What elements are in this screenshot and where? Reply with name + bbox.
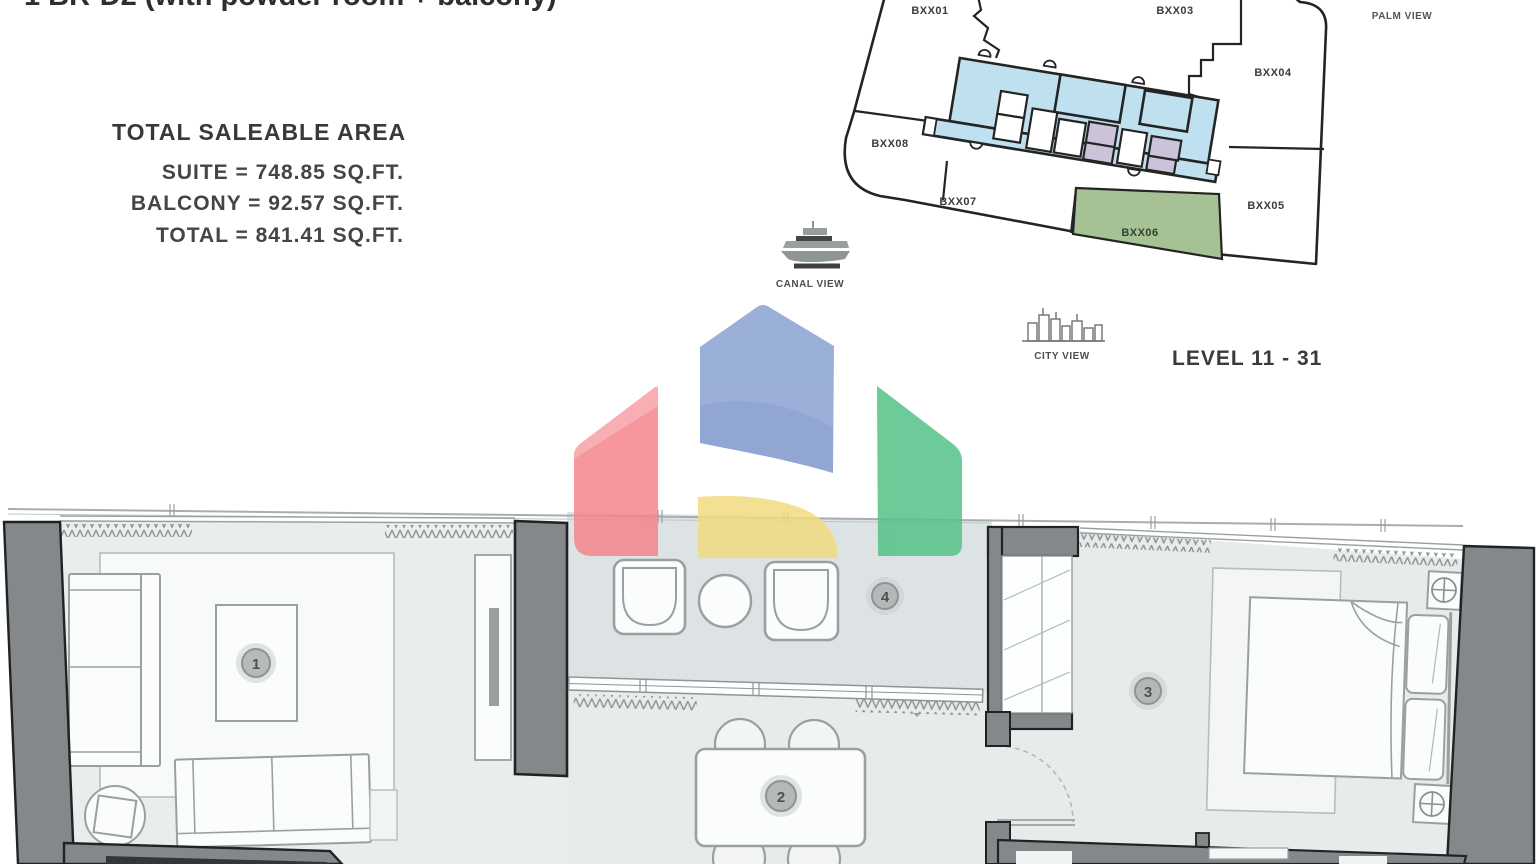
svg-text:BXX07: BXX07 xyxy=(939,196,976,208)
svg-text:TOTAL SALEABLE AREA: TOTAL SALEABLE AREA xyxy=(112,119,406,145)
svg-text:BALCONY = 92.57 SQ.FT.: BALCONY = 92.57 SQ.FT. xyxy=(131,192,404,215)
svg-text:CITY VIEW: CITY VIEW xyxy=(1034,351,1089,362)
svg-text:3: 3 xyxy=(1144,684,1152,701)
svg-text:2: 2 xyxy=(777,789,785,806)
svg-text:BXX04: BXX04 xyxy=(1254,67,1292,79)
svg-text:LEVEL 11 - 31: LEVEL 11 - 31 xyxy=(1172,347,1322,370)
svg-text:BXX05: BXX05 xyxy=(1247,200,1284,212)
svg-text:BXX03: BXX03 xyxy=(1156,5,1193,17)
svg-text:SUITE = 748.85 SQ.FT.: SUITE = 748.85 SQ.FT. xyxy=(162,161,404,184)
svg-text:BXX08: BXX08 xyxy=(871,138,908,150)
svg-text:BXX06: BXX06 xyxy=(1121,227,1158,239)
svg-text:1: 1 xyxy=(252,656,260,673)
svg-text:CANAL VIEW: CANAL VIEW xyxy=(776,279,844,290)
svg-text:TOTAL = 841.41 SQ.FT.: TOTAL = 841.41 SQ.FT. xyxy=(156,224,404,247)
svg-text:BXX01: BXX01 xyxy=(911,5,948,17)
svg-text:PALM VIEW: PALM VIEW xyxy=(1372,11,1432,22)
svg-text:4: 4 xyxy=(881,589,890,606)
svg-text:1 BR-D2 (with powder room + ba: 1 BR-D2 (with powder room + balcony) xyxy=(24,0,557,12)
